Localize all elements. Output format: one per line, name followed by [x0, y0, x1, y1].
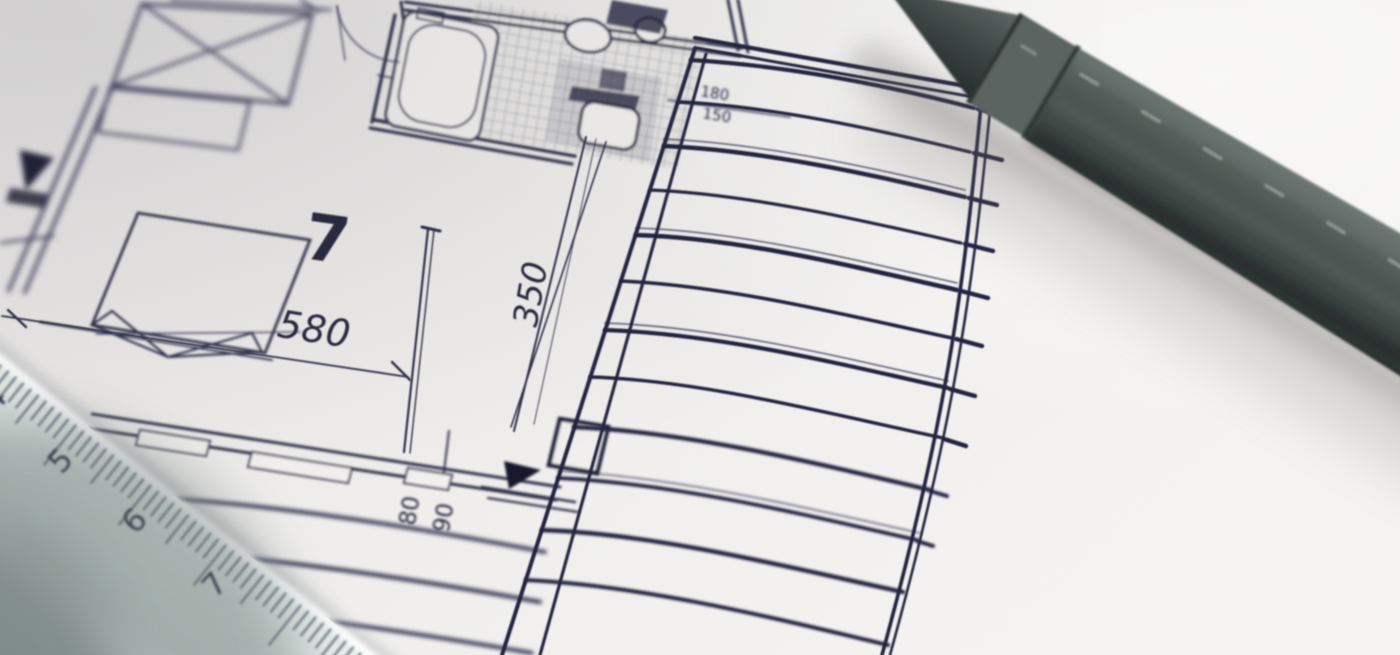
photo-stage: 580 7 350 180 150 — [0, 0, 1400, 655]
blueprint-photo: 580 7 350 180 150 — [0, 0, 1400, 655]
grain-overlay — [0, 0, 1400, 655]
